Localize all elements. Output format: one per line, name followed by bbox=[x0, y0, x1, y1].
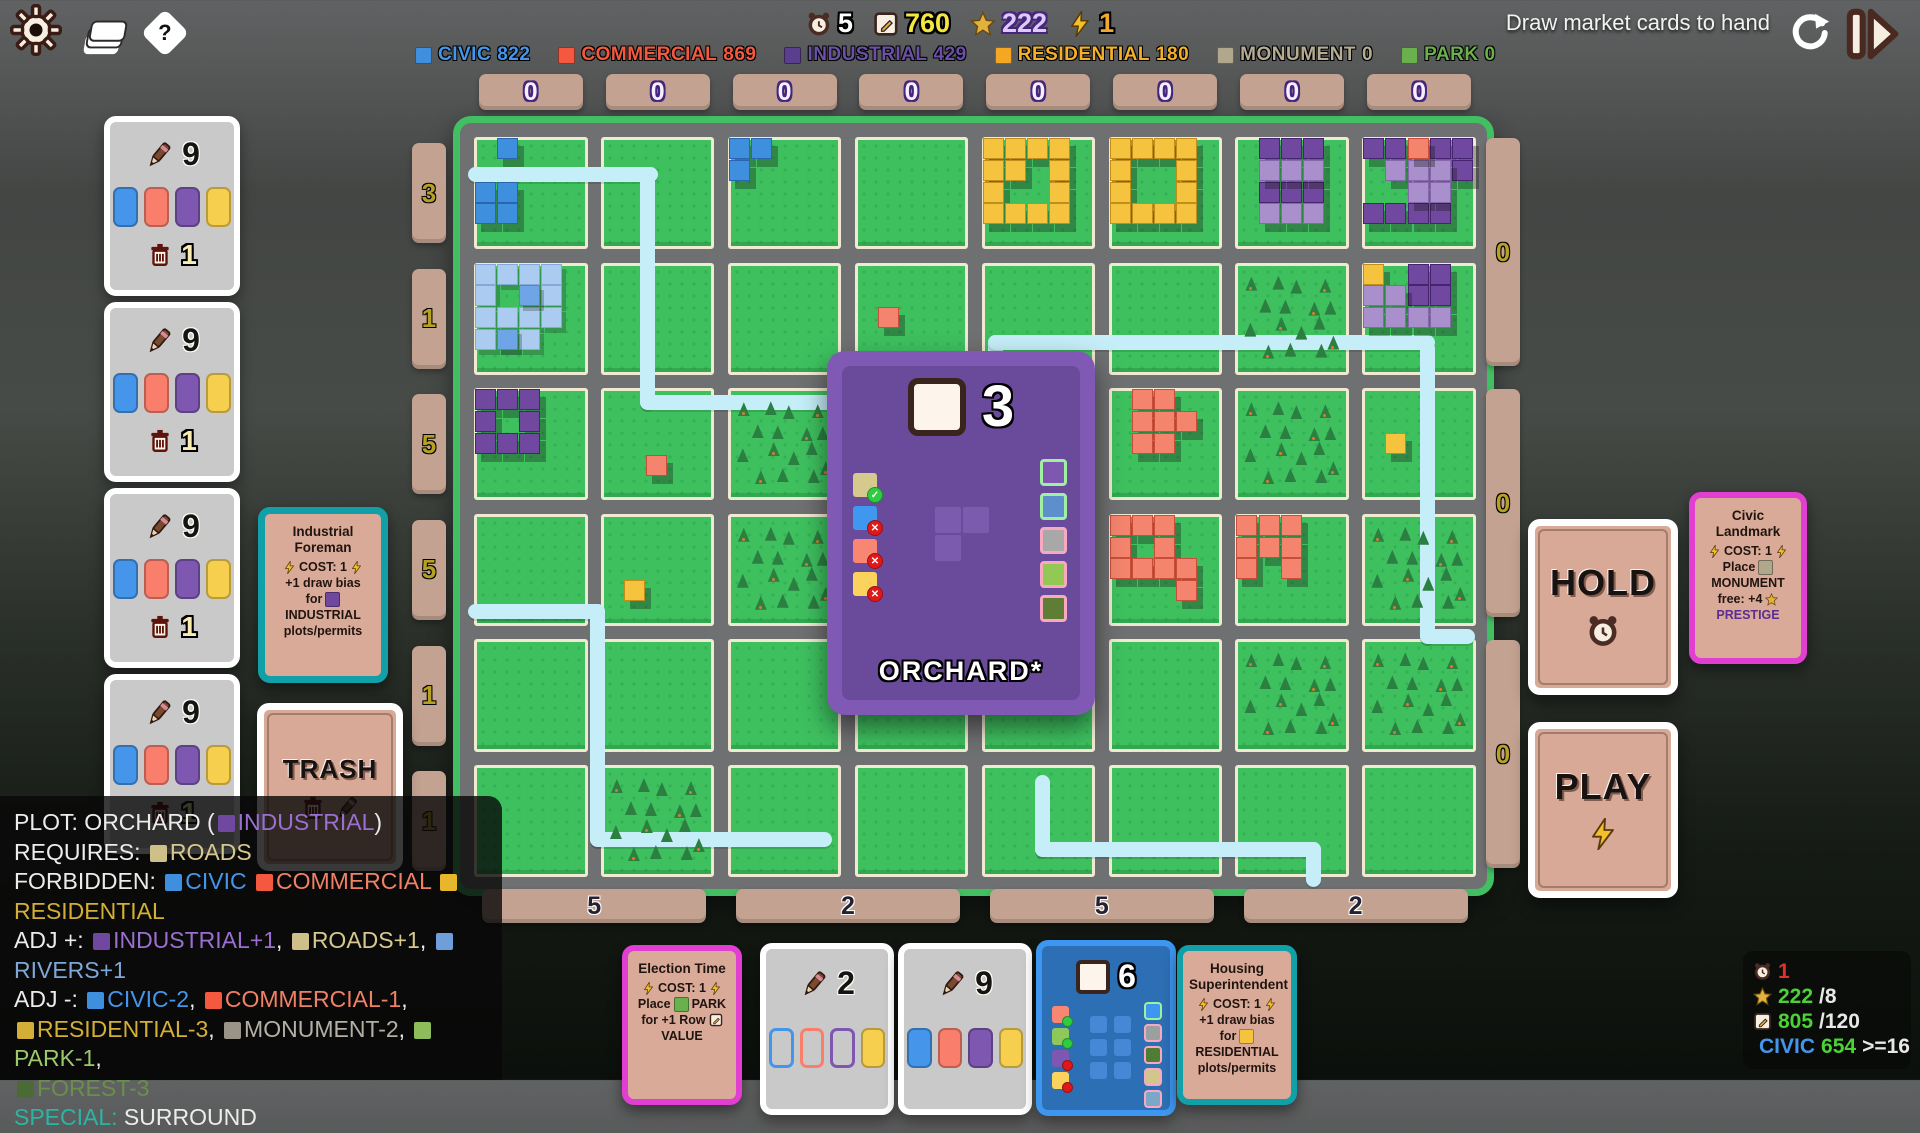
column-header-top: 0 bbox=[1113, 74, 1217, 110]
category-label: INDUSTRIAL bbox=[807, 44, 927, 66]
card-title: Civic Landmark bbox=[1701, 508, 1795, 540]
category-civic: CIVIC822 bbox=[415, 44, 530, 66]
resource-value: 222 bbox=[1002, 8, 1047, 39]
shape-tile bbox=[1090, 1016, 1107, 1033]
text-segment: ) bbox=[374, 809, 382, 835]
text-segment: RIVERS+1 bbox=[14, 957, 126, 983]
card-permit-2[interactable]: 2 bbox=[760, 943, 894, 1115]
color-square-icon bbox=[1239, 1029, 1254, 1044]
color-square-icon bbox=[436, 933, 453, 950]
building-tile bbox=[1281, 515, 1302, 536]
text-segment: FORBIDDEN: bbox=[14, 868, 162, 894]
pencil-icon bbox=[144, 512, 174, 542]
permit-chips bbox=[766, 1028, 888, 1068]
text-segment: , bbox=[276, 927, 289, 953]
plot-count-row: 6 bbox=[1042, 958, 1170, 995]
shape-tile bbox=[1090, 1062, 1107, 1079]
tooltip-line: ADJ +: INDUSTRIAL+1, ROADS+1, RIVERS+1 bbox=[14, 926, 488, 985]
card-text-line: RESIDENTIAL bbox=[1189, 1044, 1285, 1060]
bolt-icon bbox=[283, 561, 296, 574]
requirement-square: ✕ bbox=[853, 572, 877, 596]
check-badge-icon bbox=[1062, 1038, 1073, 1049]
settings-button[interactable] bbox=[10, 4, 62, 56]
tooltip-line: FORBIDDEN: CIVIC COMMERCIAL bbox=[14, 867, 488, 897]
star-icon bbox=[1753, 987, 1772, 1006]
redo-button[interactable] bbox=[1788, 12, 1830, 54]
plot-tile-icon bbox=[908, 378, 966, 436]
category-value: 429 bbox=[934, 44, 967, 66]
deck-chips bbox=[110, 559, 234, 599]
text-segment: PARK bbox=[692, 996, 727, 1012]
bolt-icon bbox=[642, 982, 655, 995]
permit-chip bbox=[113, 559, 138, 599]
shape-tile bbox=[935, 507, 961, 533]
pencil-icon bbox=[144, 326, 174, 356]
trash-count: 1 bbox=[181, 425, 197, 457]
pencil-icon bbox=[799, 969, 829, 999]
category-value: 0 bbox=[1362, 44, 1373, 66]
note-icon bbox=[709, 1013, 723, 1027]
card-text-line: PRESTIGE bbox=[1701, 607, 1795, 623]
text-segment: plots/permits bbox=[1198, 1060, 1277, 1076]
stat-row: 805/120 bbox=[1753, 1009, 1901, 1034]
card-text-line: for bbox=[271, 591, 375, 607]
category-counts: CIVIC822COMMERCIAL869INDUSTRIAL429RESIDE… bbox=[415, 44, 1496, 66]
card-text-line: INDUSTRIAL bbox=[271, 607, 375, 623]
pencil-icon bbox=[144, 140, 174, 170]
text-segment: ADJ -: bbox=[14, 986, 84, 1012]
category-label: COMMERCIAL bbox=[581, 44, 717, 66]
header-value: 1 bbox=[422, 303, 436, 334]
header-value: 0 bbox=[1285, 78, 1299, 107]
header-value: 2 bbox=[841, 892, 855, 921]
text-segment: Place bbox=[1723, 559, 1756, 575]
header-value: 0 bbox=[778, 78, 792, 107]
adjacency-swatch bbox=[1144, 1068, 1162, 1086]
permit-chip bbox=[144, 373, 169, 413]
building-tile bbox=[1236, 537, 1257, 558]
card-housing-superintendent[interactable]: Housing Superintendent COST: 1 +1 draw b… bbox=[1177, 945, 1297, 1105]
requirement-square: ✕ bbox=[853, 506, 877, 530]
text-segment: ROADS+1 bbox=[312, 927, 420, 953]
clock-icon bbox=[806, 11, 832, 37]
tooltip-line: FOREST-3 bbox=[14, 1074, 488, 1104]
stat-row: CIVIC 654>=16 bbox=[1753, 1034, 1901, 1059]
stat-value: CIVIC bbox=[1759, 1035, 1815, 1059]
x-badge-icon: ✕ bbox=[867, 520, 883, 536]
adjacency-swatch bbox=[1040, 493, 1067, 520]
card-text-line: COST: 1 bbox=[1701, 543, 1795, 559]
color-square-icon bbox=[17, 1081, 34, 1098]
text-segment: COST: 1 bbox=[1724, 543, 1772, 559]
card-text-line: +1 draw bias bbox=[1189, 1012, 1285, 1028]
end-turn-button[interactable] bbox=[1844, 6, 1902, 60]
plot-adjacency-swatches bbox=[1144, 1002, 1162, 1112]
deck-trash-row: 1 bbox=[110, 425, 234, 457]
building-tile bbox=[1281, 537, 1302, 558]
text-segment: INDUSTRIAL bbox=[285, 607, 361, 623]
color-square-icon bbox=[414, 1022, 431, 1039]
tooltip-line: PLOT: ORCHARD (INDUSTRIAL) bbox=[14, 808, 488, 838]
row-header-left: 1 bbox=[412, 646, 446, 746]
bolt-icon bbox=[1587, 818, 1619, 855]
row-header-right: 0 bbox=[1486, 389, 1520, 617]
text-segment bbox=[247, 868, 253, 894]
tooltip-line: RESIDENTIAL bbox=[14, 897, 488, 927]
stat-value: /8 bbox=[1819, 985, 1837, 1009]
adjacency-swatch bbox=[1040, 595, 1067, 622]
plot-count: 6 bbox=[1118, 958, 1136, 995]
column-header-top: 0 bbox=[1240, 74, 1344, 110]
adjacency-swatch bbox=[1144, 1046, 1162, 1064]
deck-button[interactable] bbox=[82, 12, 128, 56]
header-value: 0 bbox=[904, 78, 918, 107]
monument-color-icon bbox=[1217, 47, 1234, 64]
category-value: 0 bbox=[1485, 44, 1496, 66]
building-tile bbox=[1259, 537, 1280, 558]
text-segment: COST: 1 bbox=[1213, 996, 1261, 1012]
header-value: 5 bbox=[422, 554, 436, 585]
text-segment: CIVIC bbox=[185, 868, 246, 894]
text-segment: INDUSTRIAL bbox=[238, 809, 375, 835]
deck-trash-row: 1 bbox=[110, 611, 234, 643]
permit-chip bbox=[113, 745, 138, 785]
card-election-time[interactable]: Election Time COST: 1 Place PARKfor +1 R… bbox=[622, 945, 742, 1105]
text-segment: , bbox=[401, 986, 407, 1012]
stat-value: 654 bbox=[1821, 1035, 1856, 1059]
header-value: 5 bbox=[1095, 892, 1109, 921]
text-segment: VALUE bbox=[661, 1028, 702, 1044]
deck-card[interactable]: 91 bbox=[104, 488, 240, 668]
card-text-line: Place bbox=[1701, 559, 1795, 575]
category-label: PARK bbox=[1424, 44, 1478, 66]
plot-count: 3 bbox=[982, 373, 1014, 440]
permit-chip bbox=[175, 559, 200, 599]
row-header-left: 1 bbox=[412, 269, 446, 369]
deck-chips bbox=[110, 187, 234, 227]
permit-chip bbox=[144, 559, 169, 599]
column-header-bottom: 2 bbox=[736, 889, 960, 923]
card-text-line: plots/permits bbox=[271, 623, 375, 639]
row-header-right: 0 bbox=[1486, 640, 1520, 868]
building-tile bbox=[1236, 515, 1257, 536]
bolt-icon bbox=[1708, 545, 1721, 558]
resource-value: 760 bbox=[905, 8, 950, 39]
color-square-icon bbox=[165, 874, 182, 891]
bolt-icon bbox=[709, 982, 722, 995]
star-icon bbox=[970, 11, 996, 37]
deck-chips bbox=[110, 745, 234, 785]
deck-trash-row: 1 bbox=[110, 239, 234, 271]
column-header-top: 0 bbox=[1367, 74, 1471, 110]
help-icon: ? bbox=[141, 9, 189, 57]
card-industrial-foreman[interactable]: Industrial Foreman COST: 1 +1 draw biasf… bbox=[258, 507, 388, 683]
column-header-top: 0 bbox=[606, 74, 710, 110]
category-value: 869 bbox=[723, 44, 756, 66]
permit-chip bbox=[206, 373, 231, 413]
permit-chips bbox=[904, 1028, 1026, 1068]
plot-tooltip: PLOT: ORCHARD (INDUSTRIAL)REQUIRES: ROAD… bbox=[0, 796, 502, 1080]
clock-icon bbox=[1753, 962, 1772, 981]
permit-chip bbox=[968, 1028, 993, 1068]
permit-chip bbox=[113, 187, 138, 227]
stat-row: 222/8 bbox=[1753, 984, 1901, 1009]
trash-icon bbox=[147, 614, 173, 640]
permit-chip bbox=[830, 1028, 855, 1068]
requirement-square bbox=[1052, 1028, 1069, 1045]
deck-card[interactable]: 91 bbox=[104, 116, 240, 296]
deck-card[interactable]: 91 bbox=[104, 302, 240, 482]
park-color-icon bbox=[1401, 47, 1418, 64]
permit-chip bbox=[861, 1028, 885, 1068]
plot-adjacency-swatches bbox=[1040, 459, 1067, 629]
deck-draw-row: 9 bbox=[110, 508, 234, 545]
color-square-icon bbox=[674, 997, 689, 1012]
header-value: 5 bbox=[422, 429, 436, 460]
text-segment: +1 draw bias bbox=[1199, 1012, 1274, 1028]
color-square-icon bbox=[87, 992, 104, 1009]
resource-note: 760 bbox=[873, 8, 950, 39]
card-text-line: MONUMENT bbox=[1701, 575, 1795, 591]
commercial-color-icon bbox=[558, 47, 575, 64]
header-value: 0 bbox=[1496, 237, 1510, 268]
card-title: Industrial Foreman bbox=[271, 524, 375, 556]
text-segment: COST: 1 bbox=[299, 559, 347, 575]
category-monument: MONUMENT0 bbox=[1217, 44, 1373, 66]
category-value: 180 bbox=[1156, 44, 1189, 66]
row-header-left: 3 bbox=[412, 143, 446, 243]
text-segment: for bbox=[306, 591, 323, 607]
card-text-line: for +1 Row bbox=[634, 1012, 730, 1028]
hint-text: Draw market cards to hand bbox=[1506, 10, 1770, 36]
trash-label: TRASH bbox=[283, 754, 378, 785]
civic-color-icon bbox=[415, 47, 432, 64]
pencil-icon bbox=[144, 698, 174, 728]
residential-color-icon bbox=[995, 47, 1012, 64]
text-segment: for +1 Row bbox=[641, 1012, 705, 1028]
permit-chip bbox=[175, 373, 200, 413]
x-badge-icon bbox=[1062, 1060, 1073, 1071]
check-badge-icon bbox=[1062, 1016, 1073, 1027]
category-residential: RESIDENTIAL180 bbox=[995, 44, 1189, 66]
color-square-icon bbox=[17, 1022, 34, 1039]
category-label: CIVIC bbox=[438, 44, 491, 66]
resource-bar: 57602221 bbox=[806, 8, 1114, 39]
requirement-square: ✓ bbox=[853, 473, 877, 497]
permit-chip bbox=[769, 1028, 794, 1068]
text-segment: RESIDENTIAL bbox=[1195, 1044, 1278, 1060]
card-text-line: COST: 1 bbox=[634, 980, 730, 996]
text-segment: plots/permits bbox=[284, 623, 363, 639]
text-segment: PARK-1 bbox=[14, 1045, 95, 1071]
color-square-icon bbox=[292, 933, 309, 950]
category-commercial: COMMERCIAL869 bbox=[558, 44, 756, 66]
bolt-icon bbox=[1067, 11, 1093, 37]
text-segment: ROADS bbox=[170, 839, 252, 865]
stat-value: 222 bbox=[1778, 985, 1813, 1009]
header-value: 2 bbox=[1349, 892, 1363, 921]
text-segment: COST: 1 bbox=[658, 980, 706, 996]
tooltip-line: SPECIAL: SURROUND bbox=[14, 1103, 488, 1133]
building-tile bbox=[1236, 558, 1257, 579]
pencil-icon bbox=[937, 969, 967, 999]
text-segment: , bbox=[189, 986, 202, 1012]
shape-tile bbox=[1090, 1039, 1107, 1056]
text-segment: for bbox=[1220, 1028, 1237, 1044]
card-text-line: COST: 1 bbox=[271, 559, 375, 575]
text-segment: ADJ +: bbox=[14, 927, 90, 953]
card-text-line: for bbox=[1189, 1028, 1285, 1044]
requirement-square bbox=[1052, 1006, 1069, 1023]
permit-count: 2 bbox=[837, 965, 855, 1002]
header-value: 1 bbox=[422, 680, 436, 711]
text-segment bbox=[431, 868, 437, 894]
permit-chip bbox=[206, 559, 231, 599]
goal-stats-panel: 1222/8805/120CIVIC 654>=16 bbox=[1743, 951, 1911, 1069]
permit-draw-row: 2 bbox=[766, 965, 888, 1002]
hold-label: HOLD bbox=[1550, 562, 1656, 604]
note-icon bbox=[1753, 1012, 1772, 1031]
permit-chip bbox=[175, 187, 200, 227]
draw-count: 9 bbox=[182, 508, 200, 545]
column-header-top: 0 bbox=[733, 74, 837, 110]
card-text-line: Place PARK bbox=[634, 996, 730, 1012]
trash-icon bbox=[147, 242, 173, 268]
play-label: PLAY bbox=[1555, 766, 1652, 808]
stat-value: >=16 bbox=[1862, 1035, 1910, 1059]
adjacency-swatch bbox=[1144, 1090, 1162, 1108]
header-value: 0 bbox=[1496, 488, 1510, 519]
help-button[interactable]: ? bbox=[148, 16, 182, 50]
plot-requirement-checks: ✓✕✕✕ bbox=[853, 473, 877, 605]
shape-tile bbox=[935, 535, 961, 561]
text-segment: COMMERCIAL bbox=[276, 868, 431, 894]
hold-button[interactable]: HOLD bbox=[1528, 519, 1678, 695]
requirement-square bbox=[1052, 1072, 1069, 1089]
color-square-icon bbox=[150, 845, 167, 862]
text-segment: , bbox=[399, 1016, 412, 1042]
building-tile bbox=[1259, 515, 1280, 536]
play-button[interactable]: PLAY bbox=[1528, 722, 1678, 898]
card-text-line: +1 draw bias bbox=[271, 575, 375, 591]
building-tile bbox=[1281, 558, 1302, 579]
text-segment: , bbox=[95, 1045, 101, 1071]
text-segment: INDUSTRIAL+1 bbox=[113, 927, 276, 953]
header-value: 0 bbox=[1031, 78, 1045, 107]
card-title: Election Time bbox=[634, 961, 730, 977]
column-header-bottom: 2 bbox=[1244, 889, 1468, 923]
adjacency-swatch bbox=[1144, 1002, 1162, 1020]
trash-count: 1 bbox=[181, 239, 197, 271]
requirement-square bbox=[1052, 1050, 1069, 1067]
star-icon bbox=[1765, 593, 1778, 606]
shape-tile bbox=[1114, 1062, 1131, 1079]
text-segment: PRESTIGE bbox=[1716, 607, 1779, 623]
permit-chip bbox=[175, 745, 200, 785]
stat-row: 1 bbox=[1753, 959, 1901, 984]
permit-chip bbox=[206, 745, 231, 785]
shape-tile bbox=[1114, 1039, 1131, 1056]
plot-shape-preview bbox=[935, 507, 1015, 587]
card-title: Housing Superintendent bbox=[1189, 961, 1285, 993]
bolt-icon bbox=[1264, 998, 1277, 1011]
x-badge-icon: ✕ bbox=[867, 553, 883, 569]
text-segment: MONUMENT bbox=[1711, 575, 1785, 591]
color-square-icon bbox=[93, 933, 110, 950]
card-text-line: VALUE bbox=[634, 1028, 730, 1044]
header-value: 5 bbox=[587, 892, 601, 921]
bolt-icon bbox=[1197, 998, 1210, 1011]
card-permit-9[interactable]: 9 bbox=[898, 943, 1032, 1115]
header-value: 3 bbox=[422, 178, 436, 209]
text-segment: SPECIAL: bbox=[14, 1104, 118, 1130]
row-header-left: 5 bbox=[412, 394, 446, 494]
deck-chips bbox=[110, 373, 234, 413]
adjacency-swatch bbox=[1040, 459, 1067, 486]
text-segment: CIVIC-2 bbox=[107, 986, 189, 1012]
color-square-icon bbox=[325, 592, 340, 607]
permit-chip bbox=[113, 373, 138, 413]
column-header-bottom: 5 bbox=[482, 889, 706, 923]
column-header-top: 0 bbox=[859, 74, 963, 110]
header-value: 0 bbox=[651, 78, 665, 107]
adjacency-swatch bbox=[1040, 561, 1067, 588]
text-segment: SURROUND bbox=[118, 1104, 257, 1130]
stat-value: /120 bbox=[1819, 1010, 1860, 1034]
x-badge-icon bbox=[1062, 1082, 1073, 1093]
category-label: MONUMENT bbox=[1240, 44, 1356, 66]
plot-tile-icon bbox=[1076, 960, 1110, 994]
permit-chip bbox=[206, 187, 231, 227]
bolt-icon bbox=[1775, 545, 1788, 558]
card-civic-plot[interactable]: 6 bbox=[1036, 940, 1176, 1116]
plot-name: ORCHARD* bbox=[827, 656, 1095, 687]
text-segment: , bbox=[420, 927, 433, 953]
permit-count: 9 bbox=[975, 965, 993, 1002]
header-value: 0 bbox=[1158, 78, 1172, 107]
column-header-top: 0 bbox=[479, 74, 583, 110]
text-segment: REQUIRES: bbox=[14, 839, 147, 865]
adjacency-swatch bbox=[1144, 1024, 1162, 1042]
permit-chip bbox=[938, 1028, 963, 1068]
text-segment: RESIDENTIAL-3 bbox=[37, 1016, 208, 1042]
requirement-square: ✕ bbox=[853, 539, 877, 563]
resource-bolt: 1 bbox=[1067, 8, 1114, 39]
industrial-color-icon bbox=[784, 47, 801, 64]
permit-draw-row: 9 bbox=[904, 965, 1026, 1002]
color-square-icon bbox=[218, 815, 235, 832]
card-text-line: plots/permits bbox=[1189, 1060, 1285, 1076]
header-value: 0 bbox=[524, 78, 538, 107]
plot-card-orchard[interactable]: 3 ✓✕✕✕ ORCHARD* bbox=[827, 351, 1095, 715]
color-square-icon bbox=[205, 992, 222, 1009]
category-park: PARK0 bbox=[1401, 44, 1496, 66]
alarm-clock-icon bbox=[1586, 614, 1620, 653]
note-icon bbox=[873, 11, 899, 37]
text-segment: RESIDENTIAL bbox=[14, 898, 165, 924]
adjacency-swatch bbox=[1040, 527, 1067, 554]
color-square-icon bbox=[224, 1022, 241, 1039]
header-value: 0 bbox=[1496, 739, 1510, 770]
card-text-line: free: +4 bbox=[1701, 591, 1795, 607]
game-screen: ? 57602221 CIVIC822COMMERCIAL869INDUSTRI… bbox=[0, 0, 1920, 1080]
permit-chip bbox=[907, 1028, 932, 1068]
card-civic-landmark[interactable]: Civic Landmark COST: 1 Place MONUMENTfre… bbox=[1689, 492, 1807, 664]
permit-chip bbox=[144, 187, 169, 227]
permit-chip bbox=[800, 1028, 825, 1068]
color-square-icon bbox=[1758, 560, 1773, 575]
tooltip-line: ADJ -: CIVIC-2, COMMERCIAL-1, bbox=[14, 985, 488, 1015]
